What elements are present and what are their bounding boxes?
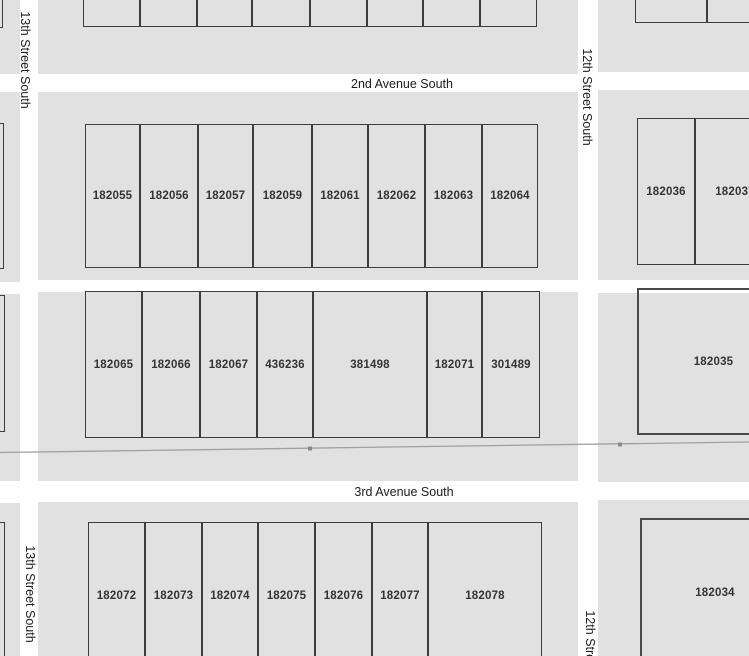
parcel-label: 182064	[490, 190, 530, 202]
street-label-12th-street-south: 12th Street South	[583, 610, 597, 656]
parcel-436236[interactable]: 436236	[257, 291, 313, 438]
parcel[interactable]	[707, 0, 749, 23]
parcel-label: 436236	[265, 359, 305, 371]
parcel-182078[interactable]: 182078	[428, 522, 542, 656]
parcel-label: 182035	[694, 356, 734, 368]
parcel[interactable]	[0, 0, 3, 28]
street-label-13th-street-south: 13th Street South	[18, 11, 32, 108]
parcel-182056[interactable]: 182056	[140, 124, 198, 268]
parcel-182071[interactable]: 182071	[427, 291, 482, 438]
parcel[interactable]	[0, 295, 5, 432]
parcel-182064[interactable]: 182064	[482, 124, 538, 268]
parcel-label: 182074	[210, 590, 250, 602]
parcel-label: 182071	[435, 359, 475, 371]
map-canvas[interactable]: 1820551820561820571820591820611820621820…	[0, 0, 749, 656]
street-label-3rd-avenue-south: 3rd Avenue South	[354, 485, 453, 499]
parcel[interactable]	[252, 0, 310, 27]
parcel-182055[interactable]: 182055	[85, 124, 140, 268]
parcel-label: 301489	[491, 359, 531, 371]
parcel-label: 182078	[465, 590, 505, 602]
parcel-182036[interactable]: 182036	[637, 118, 695, 265]
parcel-182066[interactable]: 182066	[142, 291, 200, 438]
parcel-182057[interactable]: 182057	[198, 124, 253, 268]
parcel[interactable]	[140, 0, 197, 27]
parcel-label: 182037	[715, 186, 749, 198]
parcel[interactable]	[423, 0, 480, 27]
parcel-381498[interactable]: 381498	[313, 291, 427, 438]
parcel-182067[interactable]: 182067	[200, 291, 257, 438]
parcel-label: 182034	[695, 587, 735, 599]
parcel-182072[interactable]: 182072	[88, 522, 145, 656]
city-block	[0, 0, 20, 74]
parcel[interactable]	[310, 0, 367, 27]
parcel-label: 182036	[646, 186, 686, 198]
parcel[interactable]	[0, 522, 5, 656]
parcel-label: 182063	[434, 190, 474, 202]
parcel[interactable]	[197, 0, 252, 27]
parcel-182075[interactable]: 182075	[258, 522, 315, 656]
parcel[interactable]	[0, 123, 4, 269]
parcel-301489[interactable]: 301489	[482, 291, 540, 438]
parcel[interactable]	[635, 0, 707, 23]
parcel-182073[interactable]: 182073	[145, 522, 202, 656]
parcel-label: 182072	[97, 590, 137, 602]
parcel-182063[interactable]: 182063	[425, 124, 482, 268]
parcel-label: 182061	[320, 190, 360, 202]
parcel-label: 182055	[93, 190, 133, 202]
parcel-182061[interactable]: 182061	[312, 124, 368, 268]
parcel-182034[interactable]: 182034	[640, 518, 749, 656]
parcel[interactable]	[367, 0, 423, 27]
parcel-label: 182065	[94, 359, 134, 371]
parcel-label: 182073	[154, 590, 194, 602]
parcel-label: 182067	[209, 359, 249, 371]
parcel-label: 182077	[380, 590, 420, 602]
parcel[interactable]	[83, 0, 140, 27]
parcel-label: 182076	[324, 590, 364, 602]
parcel-label: 182066	[151, 359, 191, 371]
street-label-12th-street-south: 12th Street South	[580, 48, 594, 145]
parcel-182074[interactable]: 182074	[202, 522, 258, 656]
parcel-182062[interactable]: 182062	[368, 124, 425, 268]
parcel-label: 182056	[149, 190, 189, 202]
parcel-182037[interactable]: 182037	[695, 118, 749, 265]
street-label-2nd-avenue-south: 2nd Avenue South	[351, 77, 453, 91]
parcel[interactable]	[480, 0, 537, 27]
parcel-label: 381498	[350, 359, 390, 371]
parcel-182035[interactable]: 182035	[637, 288, 749, 435]
parcel-label: 182075	[267, 590, 307, 602]
parcel-182059[interactable]: 182059	[253, 124, 312, 268]
parcel-label: 182059	[263, 190, 303, 202]
parcel-label: 182057	[206, 190, 246, 202]
parcel-label: 182062	[377, 190, 417, 202]
street-label-13th-street-south: 13th Street South	[23, 545, 37, 642]
parcel-182077[interactable]: 182077	[372, 522, 428, 656]
parcel-182065[interactable]: 182065	[85, 291, 142, 438]
parcel-182076[interactable]: 182076	[315, 522, 372, 656]
